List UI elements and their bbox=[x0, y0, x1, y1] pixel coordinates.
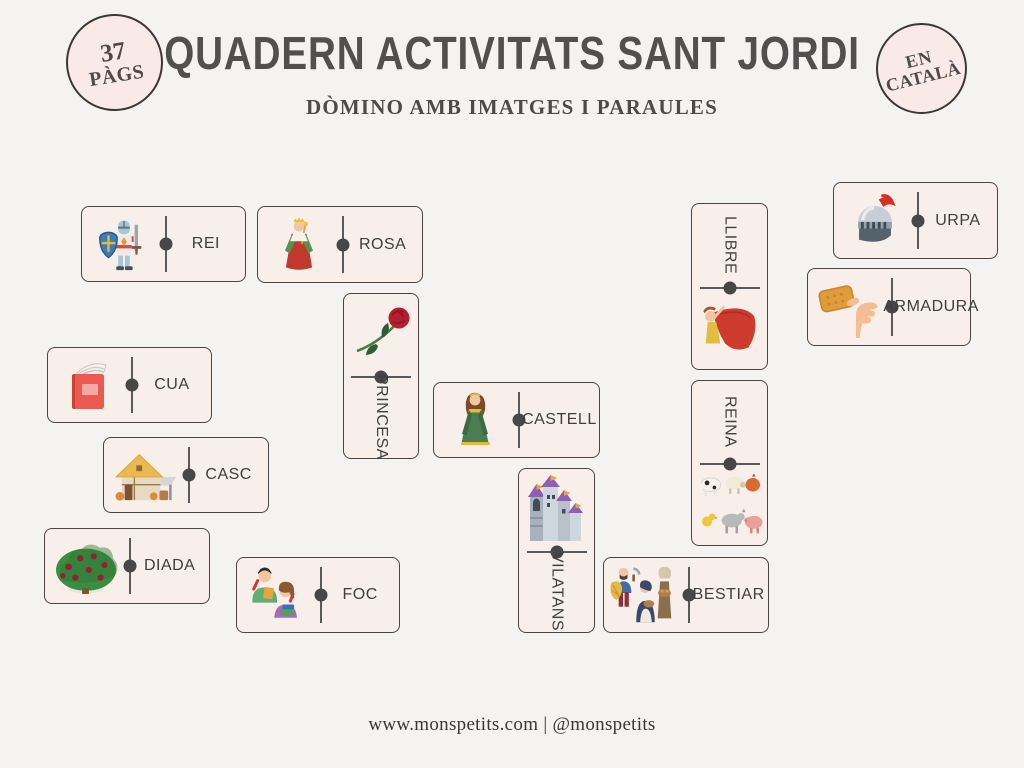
domino-tile-castell: CASTELL bbox=[433, 382, 600, 458]
domino-label: DIADA bbox=[134, 529, 206, 603]
castle-icon bbox=[519, 469, 594, 551]
domino-label: REI bbox=[170, 207, 242, 281]
domino-divider bbox=[342, 216, 344, 273]
domino-divider bbox=[188, 447, 190, 503]
domino-divider bbox=[518, 392, 520, 448]
knight-icon bbox=[82, 207, 164, 281]
knight-helmet-icon bbox=[834, 183, 916, 258]
red-cape-lady-icon bbox=[692, 287, 767, 370]
domino-tile-cua: CUA bbox=[47, 347, 212, 423]
domino-divider bbox=[320, 567, 322, 623]
reading-couple-icon bbox=[237, 558, 318, 632]
villagers-icon bbox=[604, 558, 686, 632]
domino-label: VILATANS bbox=[548, 552, 566, 631]
domino-tile-rei: REI bbox=[81, 206, 246, 282]
domino-tile-vilatans: VILATANS bbox=[518, 468, 595, 633]
domino-label: PRINCESA bbox=[372, 374, 390, 460]
domino-label: ROSA bbox=[347, 207, 419, 282]
domino-label: CASC bbox=[193, 438, 265, 512]
domino-divider bbox=[165, 216, 167, 272]
king-red-robe-icon bbox=[258, 207, 340, 282]
domino-tile-bestiar: BESTIAR bbox=[603, 557, 769, 633]
domino-label: CASTELL bbox=[523, 383, 596, 457]
page-subtitle: DÒMINO AMB IMATGES I PARAULES bbox=[0, 95, 1024, 120]
domino-divider bbox=[131, 357, 133, 413]
website-credit: www.monspetits.com | @monspetits bbox=[0, 714, 1024, 736]
domino-label: FOC bbox=[324, 558, 395, 632]
page-title: QUADERN ACTIVITATS SANT JORDI bbox=[164, 26, 860, 80]
green-princess-icon bbox=[434, 383, 517, 457]
domino-label: BESTIAR bbox=[693, 558, 765, 632]
rose-bush-icon bbox=[45, 529, 127, 603]
domino-tile-reina: REINA bbox=[691, 380, 768, 546]
domino-tile-casc: CASC bbox=[103, 437, 269, 513]
domino-tile-armadura: ARMADURA bbox=[807, 268, 971, 346]
domino-divider bbox=[688, 567, 690, 623]
domino-label: CUA bbox=[136, 348, 208, 422]
domino-tile-princesa: PRINCESA bbox=[343, 293, 419, 459]
domino-label: REINA bbox=[721, 396, 739, 447]
domino-tile-urpa: URPA bbox=[833, 182, 998, 259]
domino-label: LLIBRE bbox=[721, 216, 739, 274]
domino-tile-diada: DIADA bbox=[44, 528, 210, 604]
rose-icon bbox=[344, 294, 418, 376]
domino-tile-rosa: ROSA bbox=[257, 206, 423, 283]
farm-animals-icon bbox=[692, 463, 767, 545]
red-book-icon bbox=[48, 348, 130, 422]
domino-tile-foc: FOC bbox=[236, 557, 400, 633]
hand-with-biscuit-icon bbox=[808, 269, 889, 345]
poster: 37 PÀGS QUADERN ACTIVITATS SANT JORDI EN… bbox=[0, 0, 1024, 768]
domino-label: URPA bbox=[922, 183, 994, 258]
domino-tile-llibre: LLIBRE bbox=[691, 203, 768, 370]
medieval-house-icon bbox=[104, 438, 186, 512]
domino-divider bbox=[917, 192, 919, 249]
domino-label: ARMADURA bbox=[895, 269, 966, 345]
domino-divider bbox=[129, 538, 131, 594]
